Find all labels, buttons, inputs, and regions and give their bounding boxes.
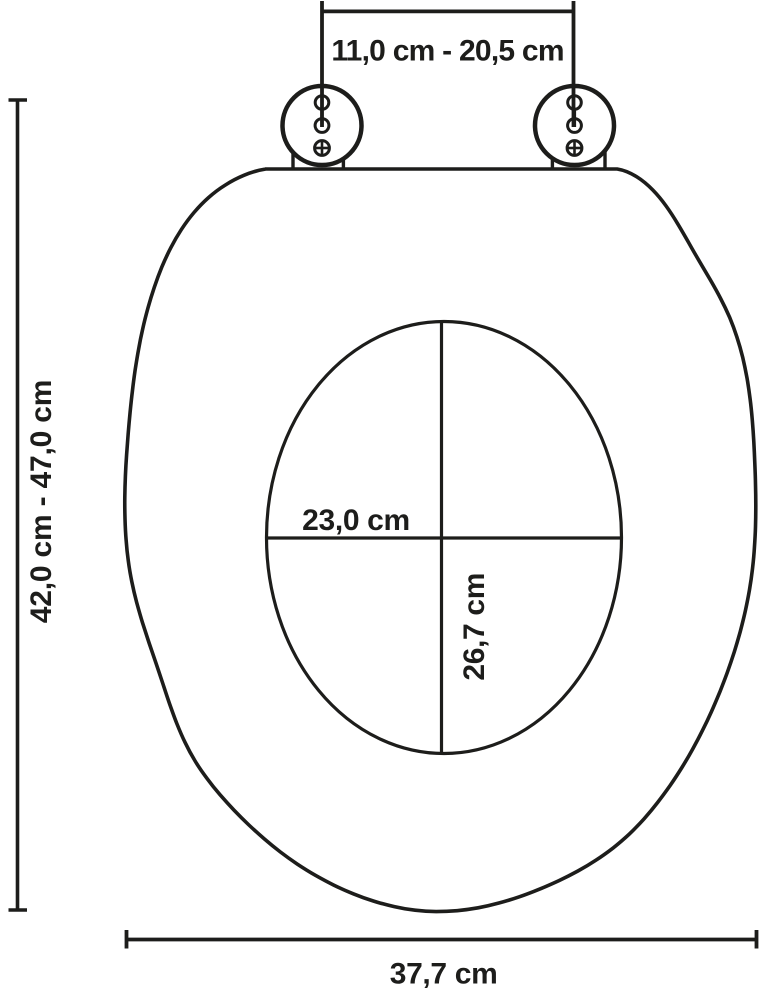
svg-text:23,0 cm: 23,0 cm [302,504,410,537]
svg-text:37,7 cm: 37,7 cm [390,958,498,991]
svg-text:26,7 cm: 26,7 cm [458,573,491,681]
svg-text:42,0 cm - 47,0 cm: 42,0 cm - 47,0 cm [25,380,58,623]
svg-text:11,0 cm - 20,5 cm: 11,0 cm - 20,5 cm [331,35,563,68]
